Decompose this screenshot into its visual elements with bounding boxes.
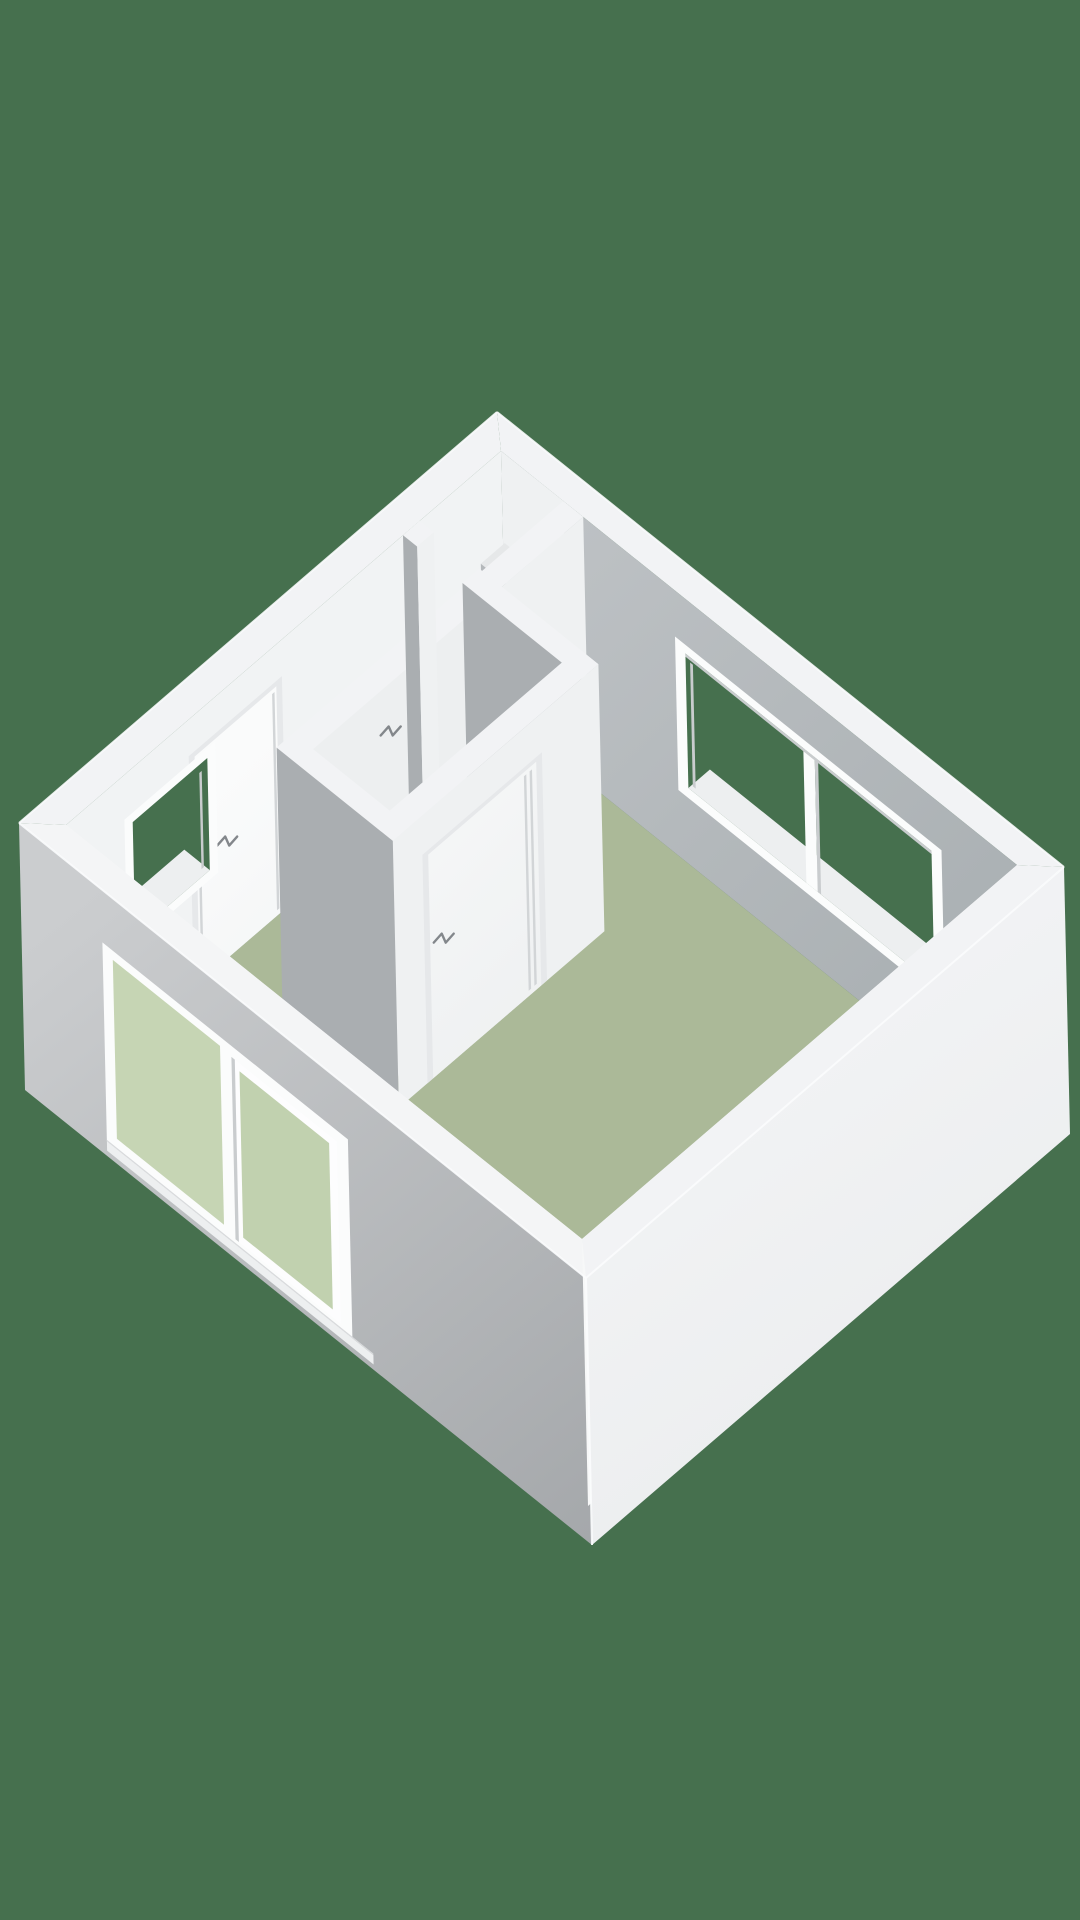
floorplan-canvas[interactable]: [0, 0, 1080, 1920]
floorplan-3d-scene[interactable]: [0, 0, 1080, 1920]
